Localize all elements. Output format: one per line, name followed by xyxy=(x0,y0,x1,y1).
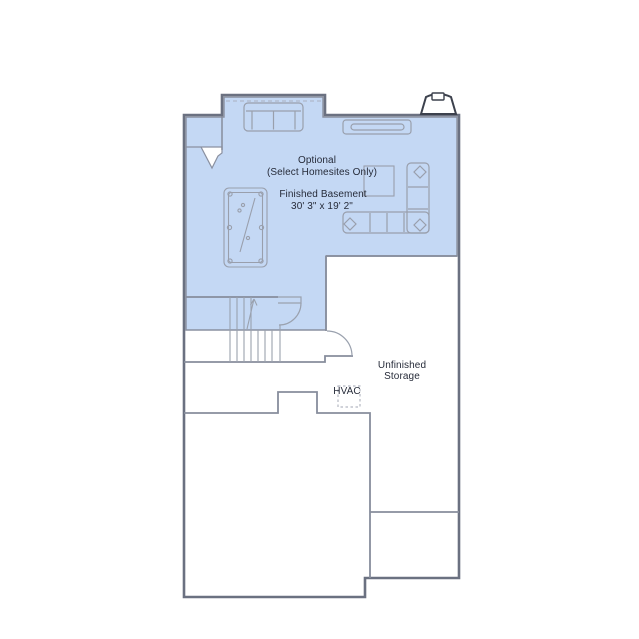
storage-door-swing-arc xyxy=(327,331,352,356)
hvac-label: HVAC xyxy=(333,386,360,397)
fireplace xyxy=(421,93,456,114)
storage-label: Unfinished Storage xyxy=(378,360,426,382)
finished-basement-highlight xyxy=(186,97,457,330)
storage-label-line1: Unfinished xyxy=(378,360,426,371)
floor-plan: Optional (Select Homesites Only) Finishe… xyxy=(0,0,639,639)
room-dimensions-label: 30' 3" x 19' 2" xyxy=(291,201,353,212)
optional-label-line1: Optional xyxy=(298,155,336,166)
optional-label-line2: (Select Homesites Only) xyxy=(267,167,377,178)
room-name-label: Finished Basement xyxy=(279,189,366,200)
floor-plan-drawing xyxy=(0,0,639,639)
storage-label-line2: Storage xyxy=(378,371,426,382)
